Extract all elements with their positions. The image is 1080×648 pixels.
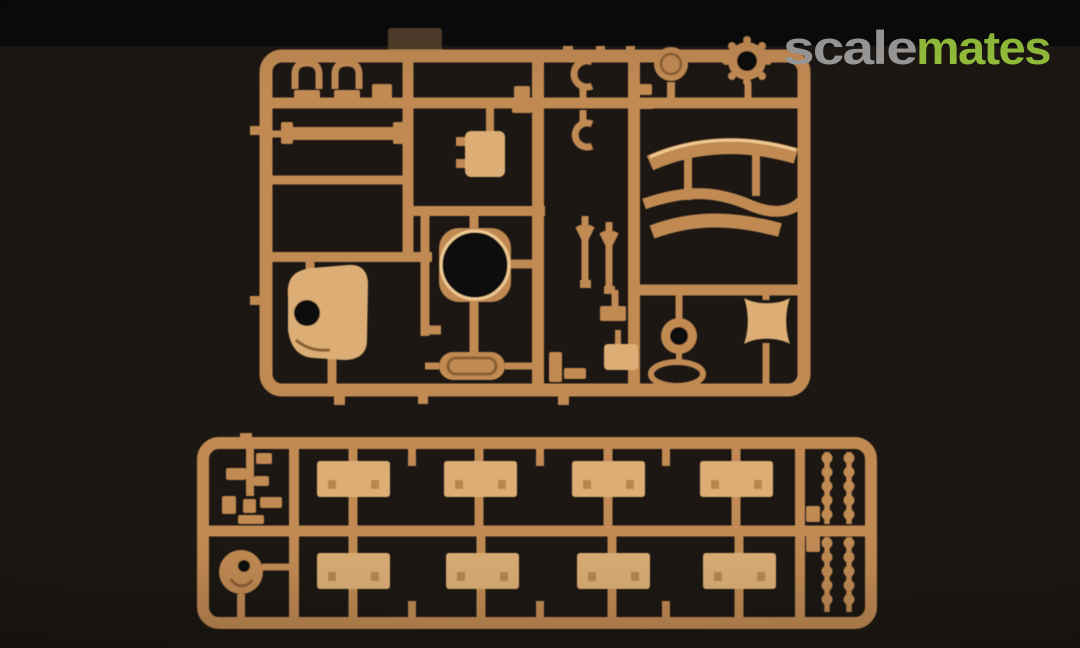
sprue-photo: scale mates xyxy=(0,0,1080,648)
photo-canvas: scale mates xyxy=(0,0,1080,648)
watermark-mates: mates xyxy=(916,21,1050,74)
watermark-scale: scale xyxy=(783,21,916,74)
strip-part xyxy=(281,127,405,140)
saddle-part xyxy=(744,298,790,344)
watermark-logo: scale mates xyxy=(783,21,1050,74)
bottom-sprue-holes xyxy=(238,560,250,572)
turret-block-hole xyxy=(294,300,320,326)
disc-part xyxy=(654,47,688,81)
notched-block-part xyxy=(465,131,505,177)
road-wheel-part xyxy=(219,550,263,594)
